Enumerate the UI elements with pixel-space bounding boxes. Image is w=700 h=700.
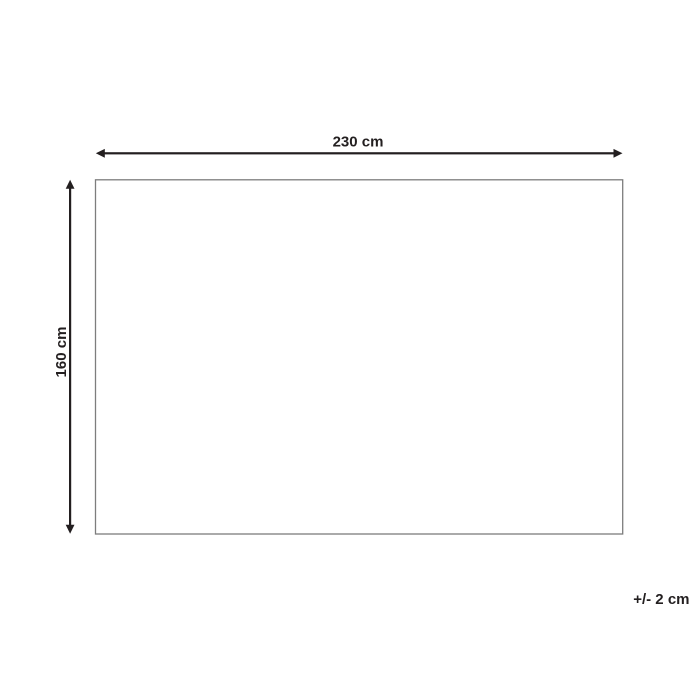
svg-text:230 cm: 230 cm [333, 134, 384, 151]
svg-text:+/- 2 cm: +/- 2 cm [633, 591, 689, 608]
svg-text:160 cm: 160 cm [53, 327, 70, 378]
